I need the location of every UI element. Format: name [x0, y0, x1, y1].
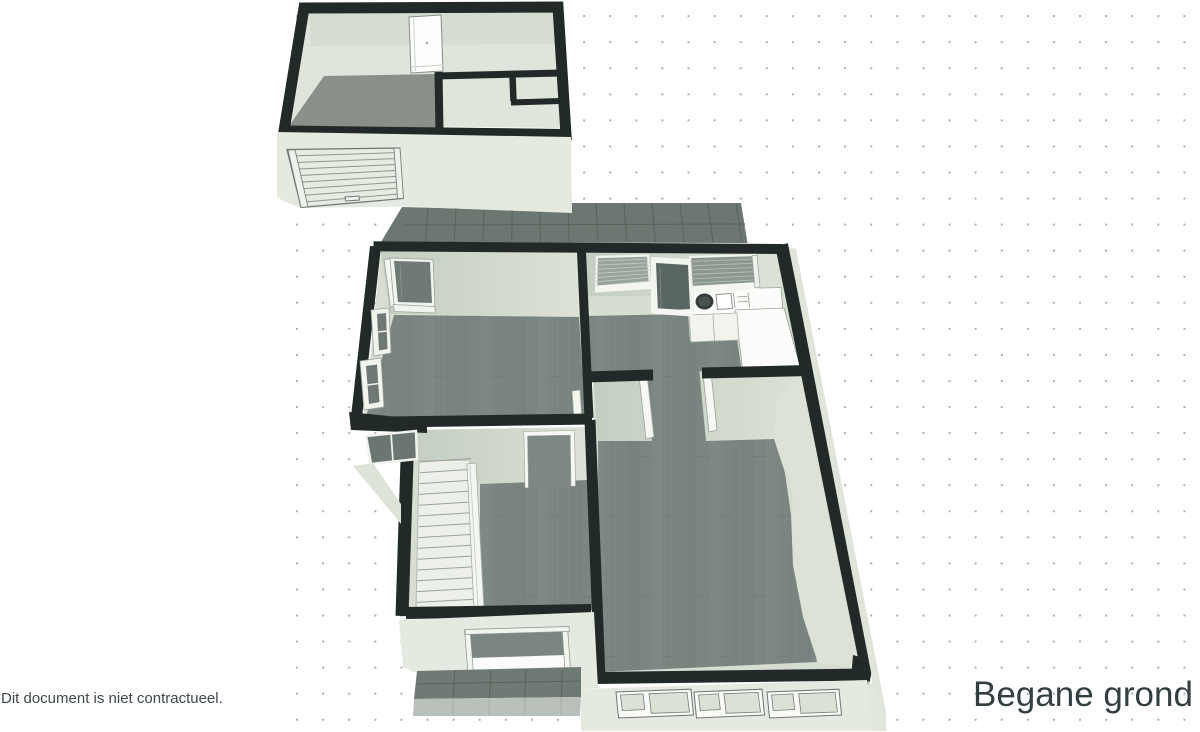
svg-text:Begane grond: Begane grond — [973, 675, 1193, 714]
svg-text:Dit document is niet contractu: Dit document is niet contractueel. — [1, 690, 223, 707]
